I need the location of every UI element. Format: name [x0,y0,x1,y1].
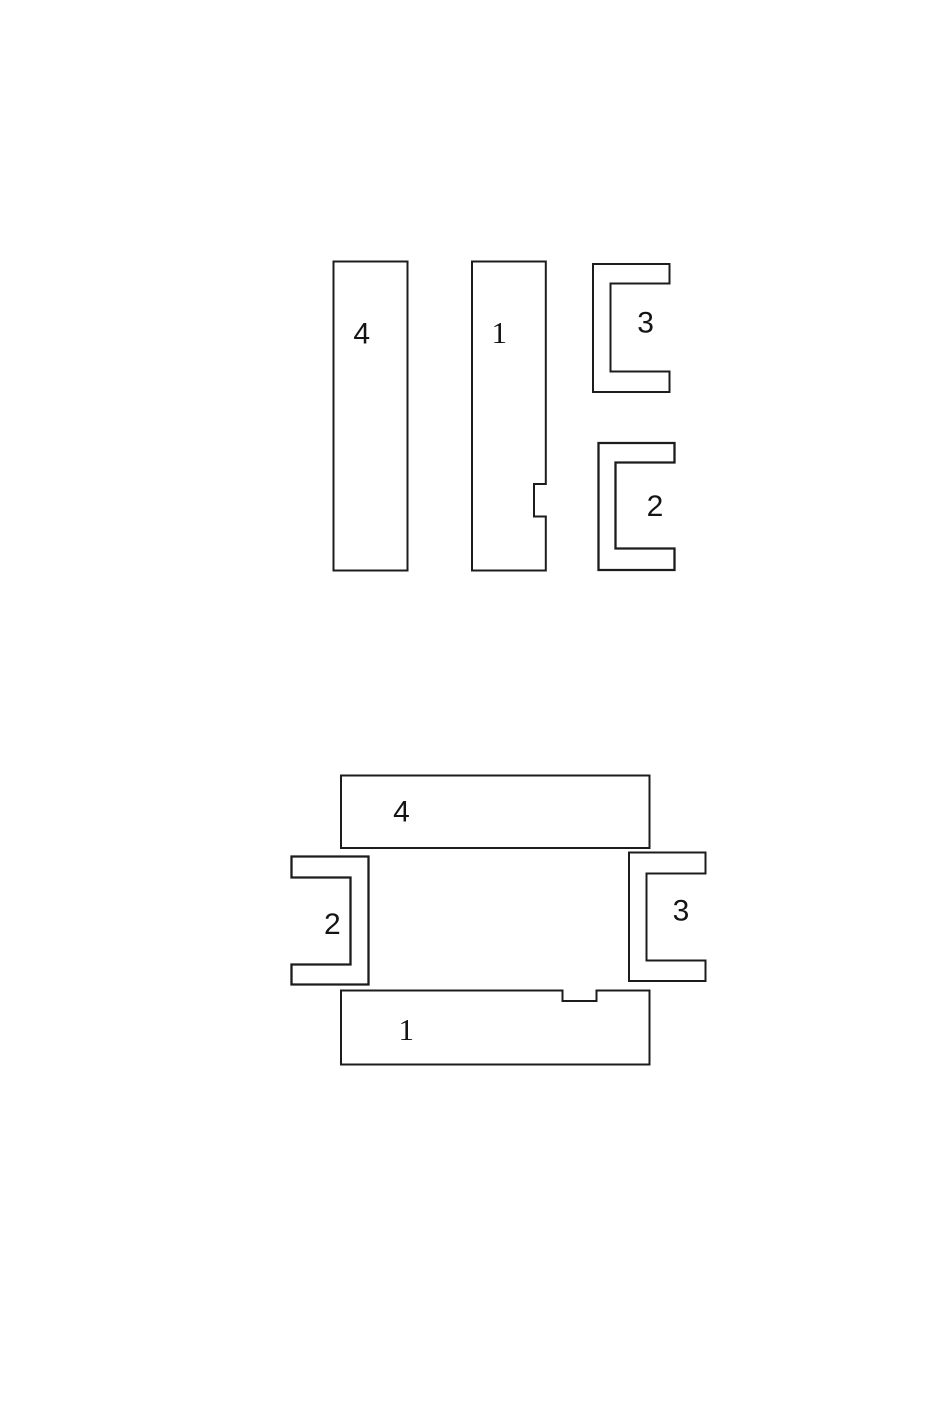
svg-text:4: 4 [353,318,370,351]
svg-text:3: 3 [673,895,690,928]
svg-text:3: 3 [637,306,654,339]
svg-text:2: 2 [324,908,341,941]
svg-text:1: 1 [399,1012,415,1047]
svg-text:2: 2 [647,490,664,523]
svg-text:1: 1 [492,315,508,350]
svg-text:4: 4 [393,796,410,829]
